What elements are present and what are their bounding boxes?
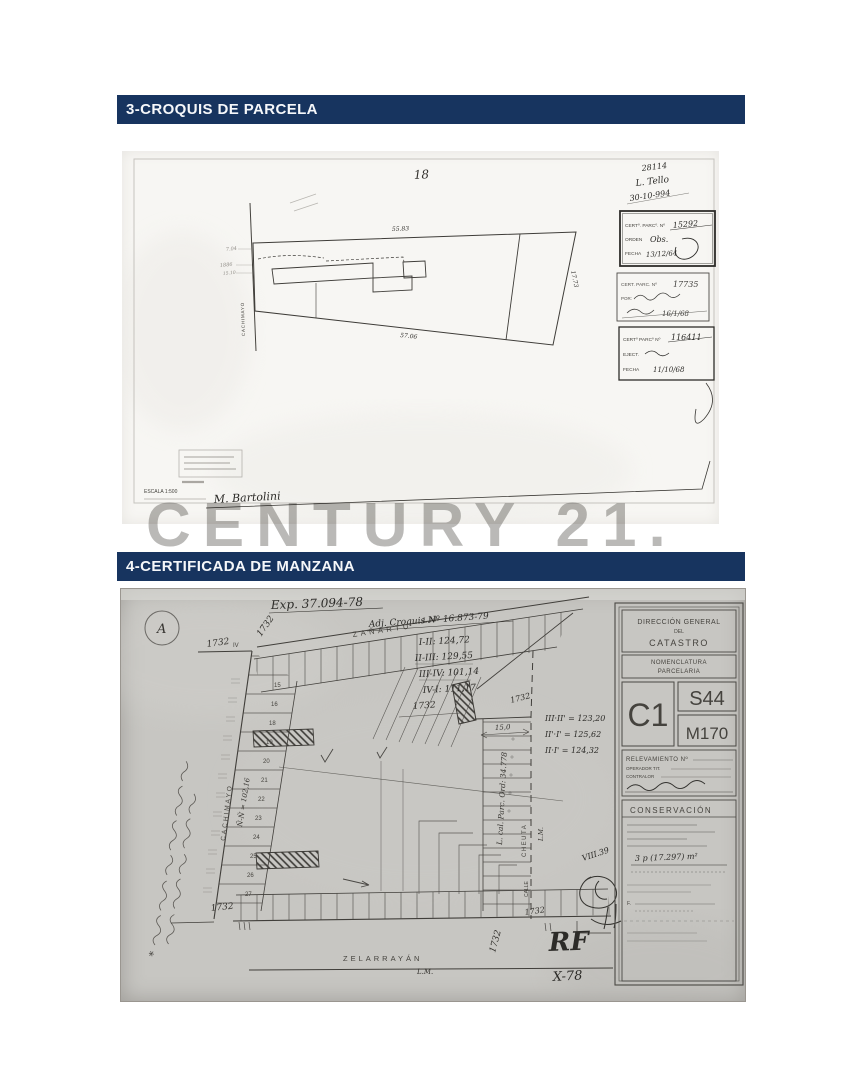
svg-text:CERTº PARCº Nº: CERTº PARCº Nº <box>623 337 661 343</box>
svg-text:26: 26 <box>247 873 254 879</box>
svg-text:17735: 17735 <box>673 280 698 289</box>
svg-text:A: A <box>156 622 166 637</box>
stamp-flourish <box>675 238 698 259</box>
hatched-lot <box>256 851 319 869</box>
lm-label: L.M. <box>538 827 545 842</box>
svg-text:116411: 116411 <box>671 333 702 342</box>
dim-bottom: 57.06 <box>400 332 418 341</box>
svg-text:L. Tello: L. Tello <box>634 175 670 189</box>
svg-text:15,0: 15,0 <box>495 723 512 732</box>
svg-text:F.: F. <box>627 901 631 907</box>
manzana-drawing: A * <box>121 589 745 1001</box>
svg-text:21: 21 <box>261 778 268 784</box>
svg-text:Obs.: Obs. <box>650 235 668 244</box>
hatched-lot <box>253 729 314 747</box>
svg-text:III·II' = 123,20: III·II' = 123,20 <box>544 714 605 723</box>
dim-small-1: 7.04 <box>226 246 238 253</box>
svg-text:DEL: DEL <box>674 629 684 635</box>
svg-text:13/12/64: 13/12/64 <box>646 249 678 259</box>
svg-text:CERT. PARC. Nº: CERT. PARC. Nº <box>621 282 657 288</box>
svg-text:18: 18 <box>269 721 276 727</box>
svg-text:1732: 1732 <box>509 691 531 705</box>
svg-text:NOMENCLATURA: NOMENCLATURA <box>651 660 707 666</box>
handwritten-register: 28114 L. Tello 30-10-994 <box>627 161 689 204</box>
street-right-label-cheuta: CHEUTA <box>522 824 528 857</box>
section-code: C1 <box>628 697 669 733</box>
svg-text:PARCELARIA: PARCELARIA <box>658 669 701 675</box>
signature-scribble <box>627 781 705 791</box>
dim-ticks <box>236 249 252 273</box>
street-right-label-calle: CALLE <box>524 880 530 897</box>
svg-text:RELEVAMIENTO Nº: RELEVAMIENTO Nº <box>626 756 688 763</box>
svg-text:POR:: POR: <box>621 296 632 301</box>
century21-watermark: CENTURY 21. <box>146 495 678 557</box>
dim-top: 55.83 <box>392 225 410 233</box>
rf-mark: RF <box>547 927 591 958</box>
svg-text:DIRECCIÓN GENERAL: DIRECCIÓN GENERAL <box>637 617 720 626</box>
svg-text:24: 24 <box>253 835 260 841</box>
lm-label: L.M. <box>416 968 433 976</box>
svg-text:CONTRALOR: CONTRALOR <box>626 774 655 779</box>
croquis-drawing: 18 CACHIMAYO 55.83 57.06 17.73 7.04 1886… <box>122 151 719 524</box>
svg-text:28114: 28114 <box>640 161 667 173</box>
svg-text:IV: IV <box>233 643 239 649</box>
svg-text:16/1/68: 16/1/68 <box>662 310 690 318</box>
signature-scribble <box>634 293 680 300</box>
svg-text:*: * <box>146 949 160 958</box>
street-bottom-label: ZELARRAYÁN <box>343 954 422 963</box>
svg-text:II'·I' = 125,62: II'·I' = 125,62 <box>544 730 601 739</box>
section-header-manzana: 4-CERTIFICADA DE MANZANA <box>117 552 745 581</box>
svg-text:II·I' = 124,32: II·I' = 124,32 <box>544 746 599 755</box>
svg-text:16: 16 <box>271 702 278 708</box>
svg-text:22: 22 <box>258 797 265 803</box>
svg-text:25: 25 <box>250 854 257 860</box>
building-footprint <box>258 256 426 319</box>
parcel-outline <box>253 232 576 345</box>
document-page: 3-CROQUIS DE PARCELA 18 CACHIMAYO 55.83 … <box>0 0 864 1080</box>
svg-text:EJECT.: EJECT. <box>623 352 639 358</box>
croquis-scan: 18 CACHIMAYO 55.83 57.06 17.73 7.04 1886… <box>122 151 719 524</box>
faint-jot <box>290 194 318 211</box>
signature-scribble <box>627 309 654 314</box>
svg-text:FECHA: FECHA <box>623 367 640 373</box>
x78-mark: X-78 <box>551 968 582 985</box>
manzana-scan: A * <box>120 588 746 1002</box>
stamp-box-1: CERTº. PARCº. Nº 15292 ORDEN Obs. FECHA … <box>620 211 715 266</box>
hook-flourish <box>695 383 713 423</box>
signature-scribble <box>645 351 669 356</box>
svg-text:19: 19 <box>266 740 273 746</box>
svg-text:CATASTRO: CATASTRO <box>649 638 709 648</box>
dim-right: 17.73 <box>569 270 579 288</box>
section-header-croquis: 3-CROQUIS DE PARCELA <box>117 95 745 124</box>
svg-text:ORDEN: ORDEN <box>625 237 643 243</box>
svg-text:30-10-994: 30-10-994 <box>629 188 671 203</box>
svg-text:1732: 1732 <box>413 700 437 712</box>
stamp-box-2: CERT. PARC. Nº 17735 POR: 16/1/68 <box>617 273 709 321</box>
svg-text:27: 27 <box>245 892 252 898</box>
plot-number: 18 <box>413 167 429 182</box>
svg-text:CERTº. PARCº. Nº: CERTº. PARCº. Nº <box>625 223 665 229</box>
svg-text:11/10/68: 11/10/68 <box>653 366 685 374</box>
area-note: 3 p (17.297) m² <box>635 852 698 863</box>
s44-code: S44 <box>689 688 725 710</box>
svg-text:CONSERVACIÓN: CONSERVACIÓN <box>630 806 712 815</box>
m170-code: M170 <box>686 724 729 743</box>
svg-text:15: 15 <box>274 683 281 689</box>
marginal-note-scribble: * <box>140 761 212 960</box>
svg-text:OPERADOR TIT.: OPERADOR TIT. <box>626 766 660 771</box>
svg-text:1732: 1732 <box>488 929 504 954</box>
stamp-box-3: CERTº PARCº Nº 116411 EJECT. FECHA 11/10… <box>619 327 714 380</box>
svg-text:20: 20 <box>263 759 270 765</box>
svg-text:FECHA: FECHA <box>625 251 642 257</box>
svg-text:III-IV: 101,14: III-IV: 101,14 <box>418 667 480 680</box>
svg-text:23: 23 <box>255 816 262 822</box>
